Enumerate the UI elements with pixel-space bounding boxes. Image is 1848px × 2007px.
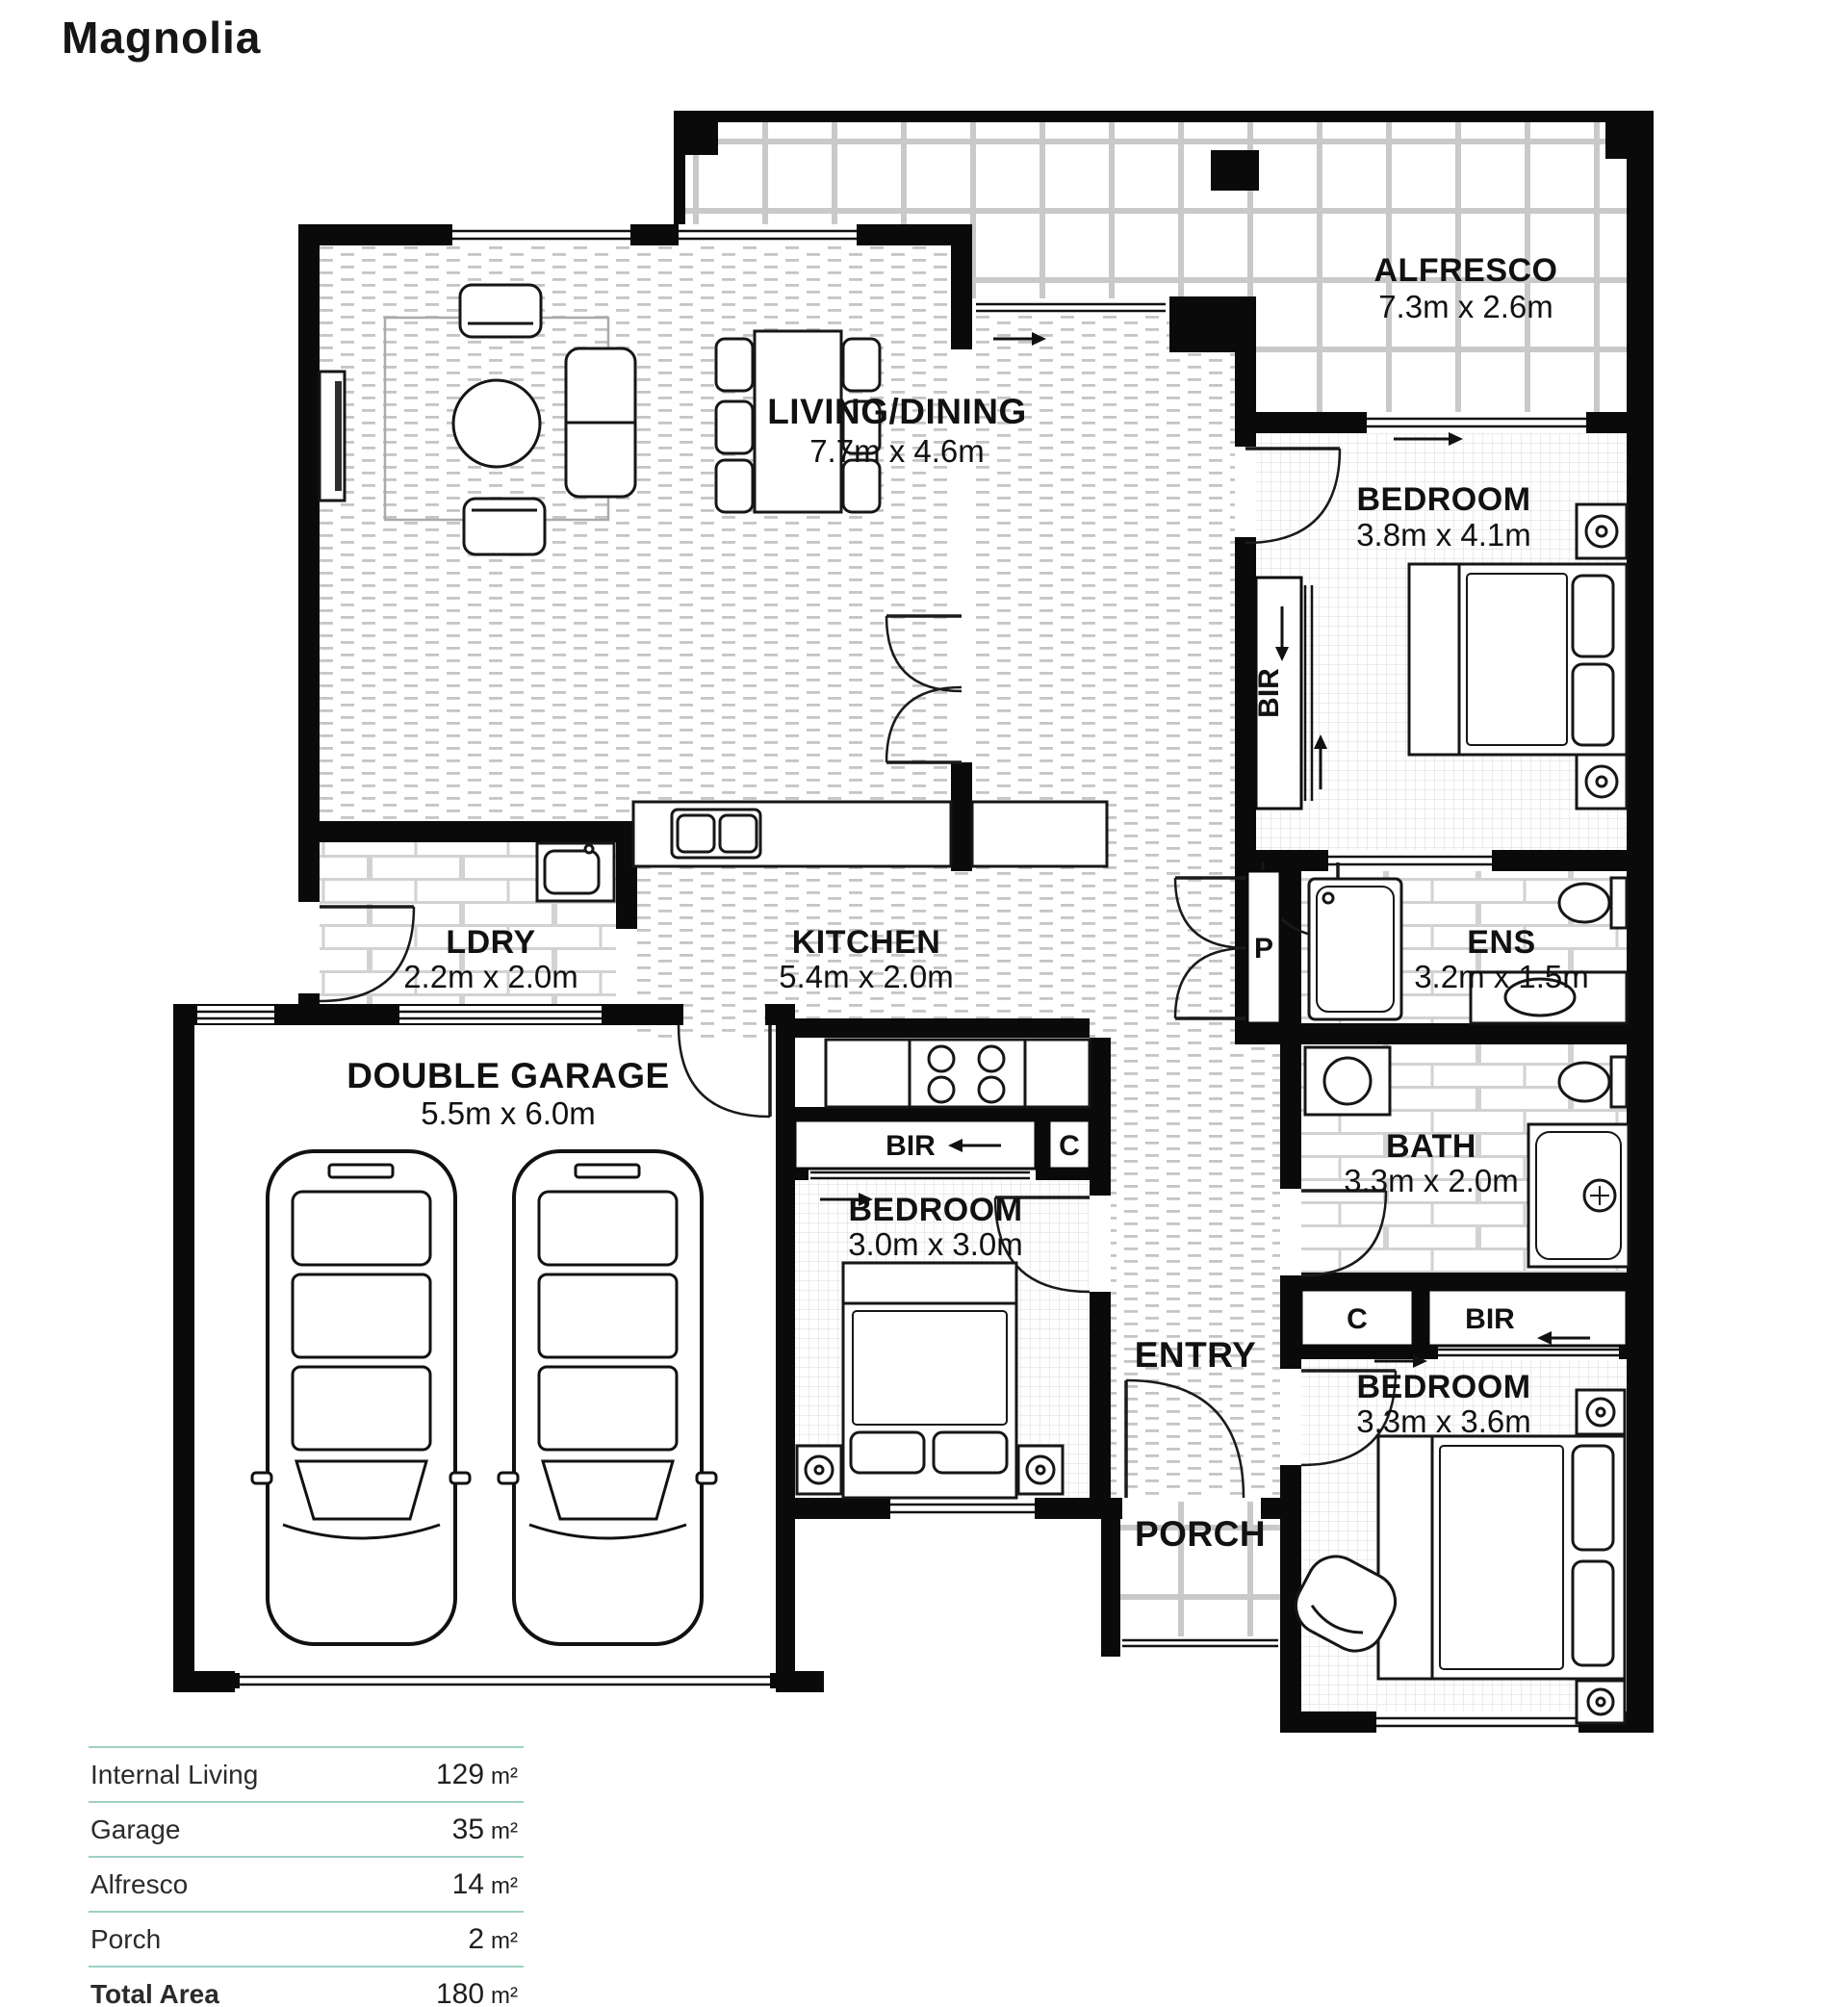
- bed-master: [1409, 564, 1627, 755]
- plan-title: Magnolia: [62, 12, 261, 64]
- dims-bedroom-two: 3.0m x 3.0m: [848, 1226, 1023, 1262]
- label-living: LIVING/DINING: [767, 392, 1027, 431]
- table-row: Alfresco 14m²: [89, 1856, 524, 1911]
- label-alfresco: ALFRESCO: [1374, 252, 1558, 289]
- row-label: Porch: [90, 1924, 161, 1955]
- living-floor: [320, 245, 951, 821]
- bath-shower: [1528, 1124, 1629, 1267]
- armchair-bottom: [464, 499, 545, 554]
- window-bedroom-three: [1376, 1711, 1578, 1733]
- sofa: [566, 348, 635, 497]
- dims-alfresco: 7.3m x 2.6m: [1378, 289, 1553, 324]
- bir-bed3-box: [1428, 1290, 1627, 1346]
- label-ensuite: ENS: [1467, 924, 1535, 961]
- window-ensuite: [1328, 850, 1492, 871]
- kitchen-appliance-nook: [826, 1040, 1090, 1107]
- row-value: 129m²: [436, 1759, 518, 1791]
- table-row: Garage 35m²: [89, 1801, 524, 1856]
- door-garage-internal: [679, 1025, 770, 1117]
- armchair-top: [460, 285, 541, 337]
- porch-step: [1122, 1640, 1278, 1646]
- label-bir-bed3: BIR: [1465, 1303, 1515, 1335]
- garage-door: [233, 1673, 777, 1688]
- label-pantry: P: [1254, 933, 1273, 965]
- ensuite-shower: [1309, 879, 1401, 1019]
- label-cupboard-bed3: C: [1347, 1303, 1368, 1335]
- bir-hall-sliding: [810, 1172, 1030, 1178]
- label-bedroom-master: BEDROOM: [1356, 481, 1530, 518]
- row-label: Alfresco: [90, 1869, 188, 1900]
- window-garage: [197, 1006, 274, 1023]
- nightstand-two-1: [797, 1446, 841, 1494]
- nightstand-three-2: [1577, 1681, 1625, 1723]
- label-bath: BATH: [1386, 1128, 1476, 1165]
- label-laundry: LDRY: [446, 924, 535, 961]
- floor-plan-page: Magnolia: [0, 0, 1848, 2007]
- label-bedroom-three: BEDROOM: [1356, 1369, 1530, 1405]
- dims-bedroom-three: 3.3m x 3.6m: [1356, 1403, 1531, 1439]
- kitchen-island: [633, 802, 951, 866]
- nightstand-two-2: [1018, 1446, 1063, 1494]
- label-bedroom-two: BEDROOM: [848, 1192, 1022, 1228]
- label-bir-hall: BIR: [885, 1130, 936, 1162]
- kitchen-counter: [972, 802, 1107, 866]
- table-row: Porch 2m²: [89, 1911, 524, 1966]
- table-row: Internal Living 129m²: [89, 1746, 524, 1801]
- entry-floor: [1111, 1038, 1280, 1498]
- car-left: [252, 1151, 470, 1644]
- row-label: Total Area: [90, 1979, 219, 2007]
- window-bedroom-master: [1367, 412, 1586, 433]
- dims-bedroom-master: 3.8m x 4.1m: [1356, 517, 1531, 553]
- nightstand-master-1: [1577, 504, 1627, 558]
- alfresco-sliding-door: [972, 298, 1169, 316]
- dims-bath: 3.3m x 2.0m: [1344, 1163, 1519, 1198]
- nightstand-three-1: [1577, 1390, 1625, 1434]
- dims-kitchen: 5.4m x 2.0m: [779, 959, 954, 994]
- floor-plan: ALFRESCO 7.3m x 2.6m LIVING/DINING 7.7m …: [0, 0, 1848, 2007]
- row-label: Internal Living: [90, 1760, 258, 1790]
- label-kitchen: KITCHEN: [792, 924, 941, 961]
- bed-two: [843, 1263, 1016, 1498]
- window-living-2: [679, 224, 857, 245]
- label-cupboard-hall: C: [1059, 1130, 1080, 1162]
- row-value: 14m²: [452, 1868, 518, 1901]
- car-right: [499, 1151, 716, 1644]
- table-row-total: Total Area 180m²: [89, 1966, 524, 2007]
- row-value: 35m²: [452, 1814, 518, 1846]
- bath-vanity: [1305, 1047, 1390, 1115]
- area-summary-table: Internal Living 129m² Garage 35m² Alfres…: [89, 1746, 524, 2007]
- label-porch: PORCH: [1135, 1514, 1266, 1554]
- window-living-1: [452, 224, 630, 245]
- dims-living: 7.7m x 4.6m: [809, 433, 985, 469]
- row-value: 2m²: [468, 1923, 518, 1956]
- coffee-table: [453, 380, 540, 467]
- label-entry: ENTRY: [1135, 1335, 1257, 1375]
- label-garage: DOUBLE GARAGE: [346, 1056, 669, 1095]
- dims-laundry: 2.2m x 2.0m: [403, 959, 578, 994]
- window-bedroom-two: [890, 1498, 1035, 1519]
- tv-unit: [320, 372, 345, 501]
- row-label: Garage: [90, 1814, 180, 1845]
- window-laundry: [399, 1006, 602, 1023]
- laundry-trough: [537, 843, 614, 901]
- bir-bed3-sliding: [1438, 1350, 1621, 1355]
- bed-three: [1378, 1436, 1625, 1679]
- dims-ensuite: 3.2m x 1.5m: [1414, 959, 1589, 994]
- nightstand-master-2: [1577, 755, 1627, 809]
- row-value: 180m²: [436, 1978, 518, 2007]
- dims-garage: 5.5m x 6.0m: [421, 1095, 596, 1131]
- label-bir-master: BIR: [1253, 668, 1285, 718]
